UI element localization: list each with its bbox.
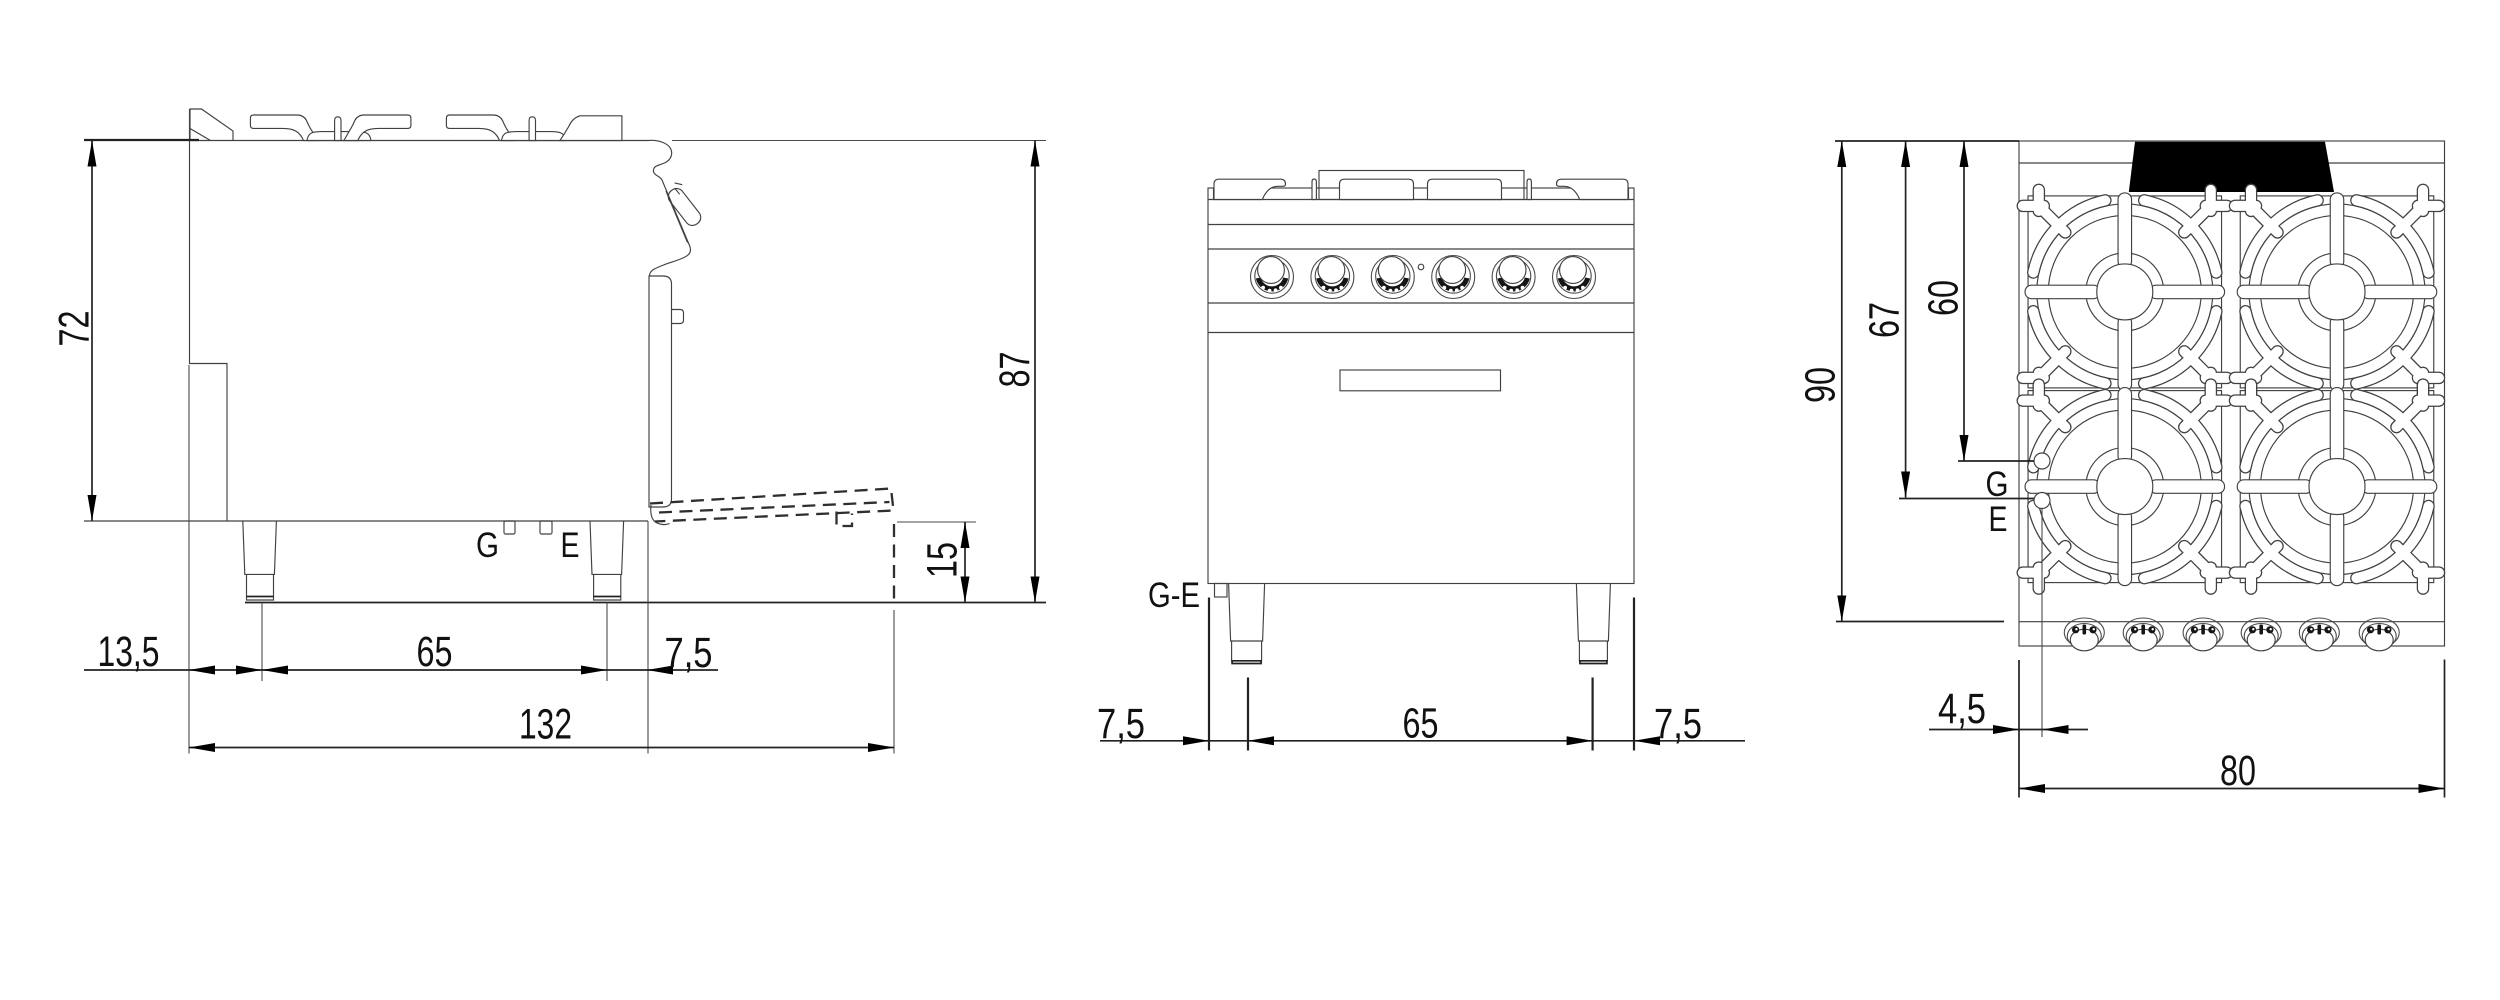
svg-text:80: 80 xyxy=(2220,748,2256,795)
svg-text:7,5: 7,5 xyxy=(665,630,713,677)
svg-text:67: 67 xyxy=(1862,302,1909,338)
svg-text:G: G xyxy=(476,526,499,565)
svg-text:87: 87 xyxy=(992,352,1039,388)
svg-text:72: 72 xyxy=(52,311,99,347)
svg-text:132: 132 xyxy=(519,702,572,749)
svg-text:7,5: 7,5 xyxy=(1097,701,1145,748)
svg-text:65: 65 xyxy=(417,629,453,676)
svg-text:E: E xyxy=(561,526,580,565)
svg-text:7,5: 7,5 xyxy=(1654,701,1702,748)
svg-text:65: 65 xyxy=(1403,701,1439,748)
svg-text:G-E: G-E xyxy=(1148,576,1200,615)
svg-text:4,5: 4,5 xyxy=(1938,686,1986,733)
svg-text:15: 15 xyxy=(920,542,967,578)
svg-text:E: E xyxy=(1989,500,2008,539)
svg-text:13,5: 13,5 xyxy=(98,629,160,676)
svg-text:90: 90 xyxy=(1798,367,1845,403)
svg-text:60: 60 xyxy=(1921,280,1968,316)
